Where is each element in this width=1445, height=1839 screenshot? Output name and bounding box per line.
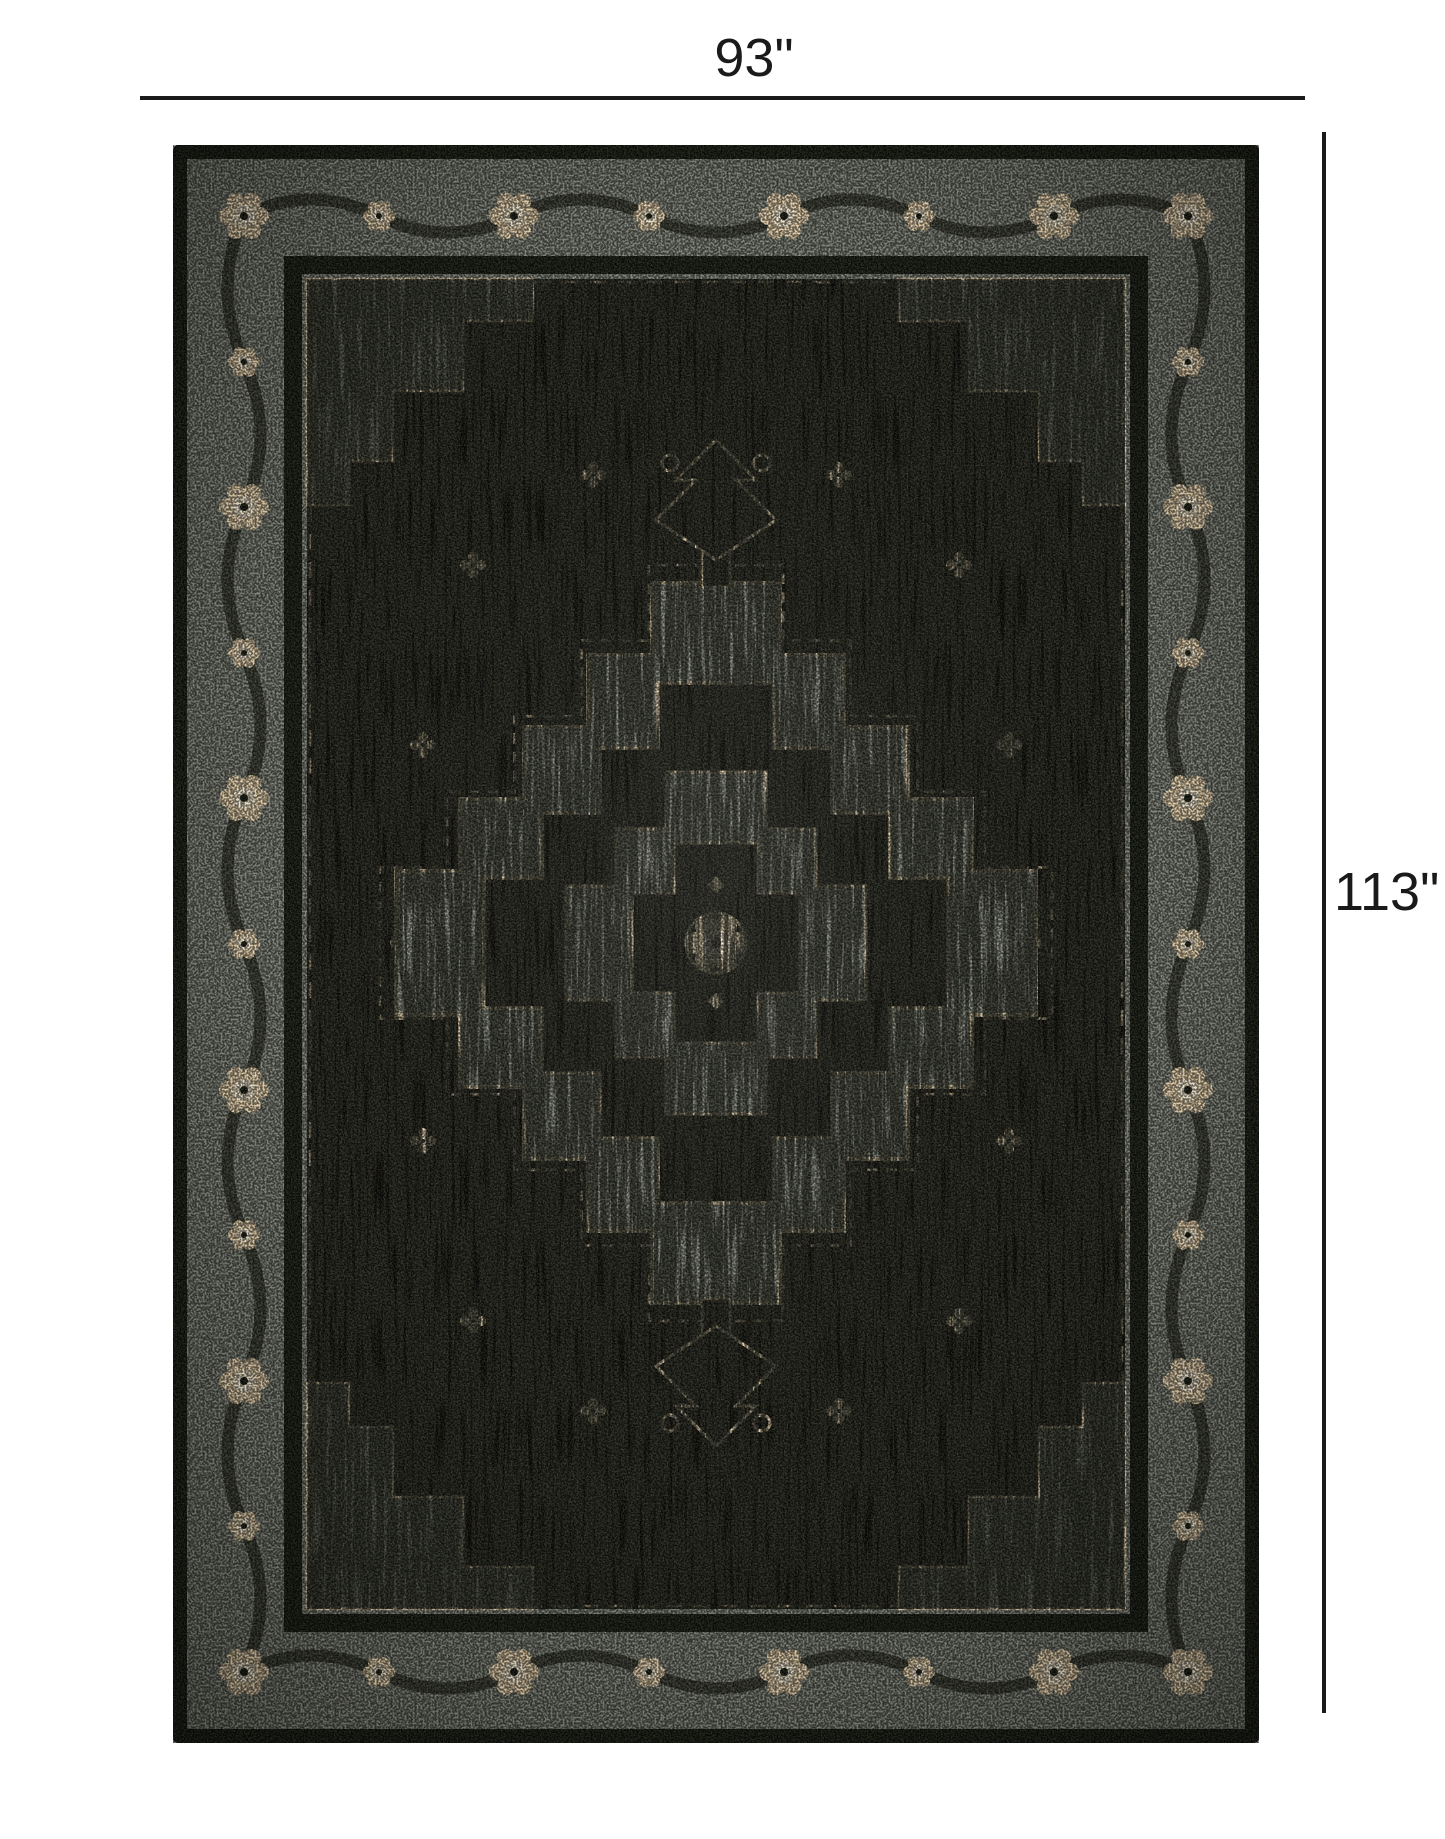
rug-photo xyxy=(173,145,1259,1743)
rug-image xyxy=(173,145,1259,1743)
width-dimension-line xyxy=(140,96,1305,100)
width-label: 93" xyxy=(694,30,814,86)
height-label: 113" xyxy=(1334,864,1439,920)
product-dimension-figure: 93" 113" xyxy=(0,0,1445,1839)
height-dimension-line xyxy=(1322,132,1326,1713)
photo-vignette xyxy=(173,145,1259,1743)
